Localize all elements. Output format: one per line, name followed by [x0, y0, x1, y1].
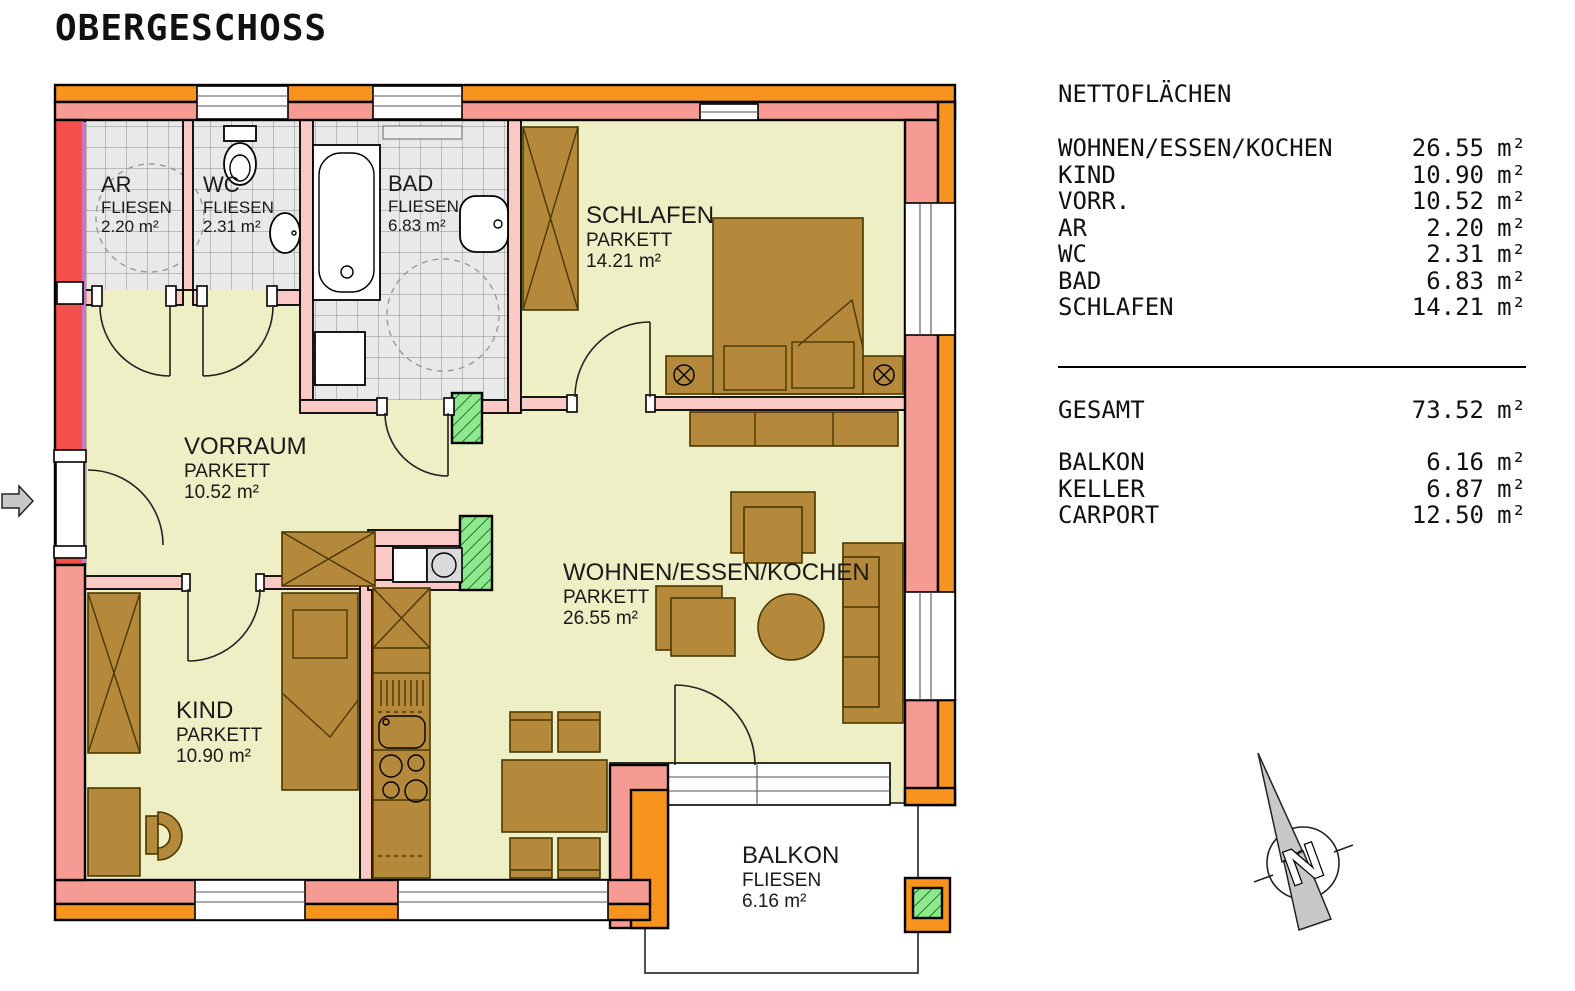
area-row: VORR. 10.52 m²	[1058, 188, 1526, 215]
area-row-label: KIND	[1058, 162, 1364, 189]
area-row: WOHNEN/ESSEN/KOCHEN 26.55 m²	[1058, 135, 1526, 162]
area-row-value: 6.87	[1364, 476, 1484, 503]
shaft-1	[452, 393, 482, 443]
net-areas-panel: NETTOFLÄCHEN WOHNEN/ESSEN/KOCHEN 26.55 m…	[1058, 80, 1526, 529]
net-areas-rows: WOHNEN/ESSEN/KOCHEN 26.55 m² KIND 10.90 …	[1058, 135, 1526, 321]
area-row-unit: m²	[1484, 135, 1526, 162]
area-row-unit: m²	[1484, 294, 1526, 321]
area-row-unit: m²	[1484, 476, 1526, 503]
room-label-vorraum: VORRAUM PARKETT 10.52 m²	[184, 434, 307, 503]
desk-kind	[88, 788, 140, 876]
table-divider	[1058, 366, 1526, 368]
bathtub-icon	[313, 145, 380, 300]
sideboard	[690, 412, 898, 446]
window-schlafen	[905, 203, 955, 335]
area-row-label: AR	[1058, 215, 1364, 242]
area-row: KIND 10.90 m²	[1058, 162, 1526, 189]
area-row: KELLER 6.87 m²	[1058, 476, 1526, 503]
wall-niche	[57, 282, 83, 304]
area-row-value: 6.16	[1364, 449, 1484, 476]
area-row-label: WOHNEN/ESSEN/KOCHEN	[1058, 135, 1364, 162]
chair	[558, 838, 600, 878]
room-label-wohnen: WOHNEN/ESSEN/KOCHEN PARKETT 26.55 m²	[563, 560, 870, 629]
area-row-unit: m²	[1484, 241, 1526, 268]
bad-shelf	[383, 126, 462, 139]
room-label-ar: AR FLIESEN 2.20 m²	[101, 173, 172, 236]
area-row: WC 2.31 m²	[1058, 241, 1526, 268]
window-top-2	[373, 86, 462, 119]
area-row-unit: m²	[1484, 449, 1526, 476]
washing-machine-icon	[315, 332, 365, 385]
net-areas-extras: BALKON 6.16 m² KELLER 6.87 m² CARPORT 12…	[1058, 449, 1526, 529]
area-row-label: BAD	[1058, 268, 1364, 295]
area-row-value: 73.52	[1364, 397, 1484, 424]
appliance-dishwasher	[393, 548, 427, 582]
entrance-arrow-icon	[2, 486, 33, 516]
area-row-value: 2.31	[1364, 241, 1484, 268]
shaft-balcony	[913, 888, 942, 918]
north-compass-icon: N	[1254, 753, 1353, 930]
window-top-1	[197, 86, 288, 119]
window-wohnen	[905, 592, 955, 700]
bed-schlafen	[713, 218, 863, 394]
area-row-label: BALKON	[1058, 449, 1364, 476]
shaft-2	[460, 516, 492, 590]
chair	[558, 712, 600, 752]
bad-basin-icon	[460, 196, 508, 252]
area-row: SCHLAFEN 14.21 m²	[1058, 294, 1526, 321]
area-row-label: VORR.	[1058, 188, 1364, 215]
area-row-label: WC	[1058, 241, 1364, 268]
area-row-value: 26.55	[1364, 135, 1484, 162]
area-row: BALKON 6.16 m²	[1058, 449, 1526, 476]
area-row: BAD 6.83 m²	[1058, 268, 1526, 295]
area-row-unit: m²	[1484, 268, 1526, 295]
kitchen-counter	[373, 588, 430, 878]
area-row: GESAMT 73.52 m²	[1058, 397, 1526, 424]
window-kind	[195, 880, 305, 920]
area-row-label: CARPORT	[1058, 502, 1364, 529]
area-row-value: 2.20	[1364, 215, 1484, 242]
area-row: CARPORT 12.50 m²	[1058, 502, 1526, 529]
chair-kind	[146, 816, 158, 854]
area-row-label: KELLER	[1058, 476, 1364, 503]
net-areas-heading: NETTOFLÄCHEN	[1058, 80, 1526, 108]
area-row-unit: m²	[1484, 162, 1526, 189]
area-row: AR 2.20 m²	[1058, 215, 1526, 242]
area-row-unit: m²	[1484, 397, 1526, 424]
room-label-balkon: BALKON FLIESEN 6.16 m²	[742, 843, 839, 912]
room-label-bad: BAD FLIESEN 6.83 m²	[388, 172, 459, 235]
dining-table	[502, 760, 607, 832]
chair	[510, 712, 552, 752]
area-row-unit: m²	[1484, 215, 1526, 242]
area-row-value: 10.52	[1364, 188, 1484, 215]
net-areas-total: GESAMT 73.52 m²	[1058, 397, 1526, 424]
area-row-value: 14.21	[1364, 294, 1484, 321]
compass-north-label: N	[1277, 831, 1330, 896]
area-row-value: 12.50	[1364, 502, 1484, 529]
area-row-value: 6.83	[1364, 268, 1484, 295]
area-row-unit: m²	[1484, 502, 1526, 529]
area-row-label: SCHLAFEN	[1058, 294, 1364, 321]
room-label-schlafen: SCHLAFEN PARKETT 14.21 m²	[586, 203, 714, 272]
room-label-wc: WC FLIESEN 2.31 m²	[203, 173, 274, 236]
room-label-kind: KIND PARKETT 10.90 m²	[176, 698, 262, 767]
chair	[510, 838, 552, 878]
entrance-opening	[56, 460, 84, 548]
area-row-value: 10.90	[1364, 162, 1484, 189]
area-row-unit: m²	[1484, 188, 1526, 215]
window-essen	[398, 880, 608, 920]
toilet-icon	[224, 126, 256, 141]
area-row-label: GESAMT	[1058, 397, 1364, 424]
